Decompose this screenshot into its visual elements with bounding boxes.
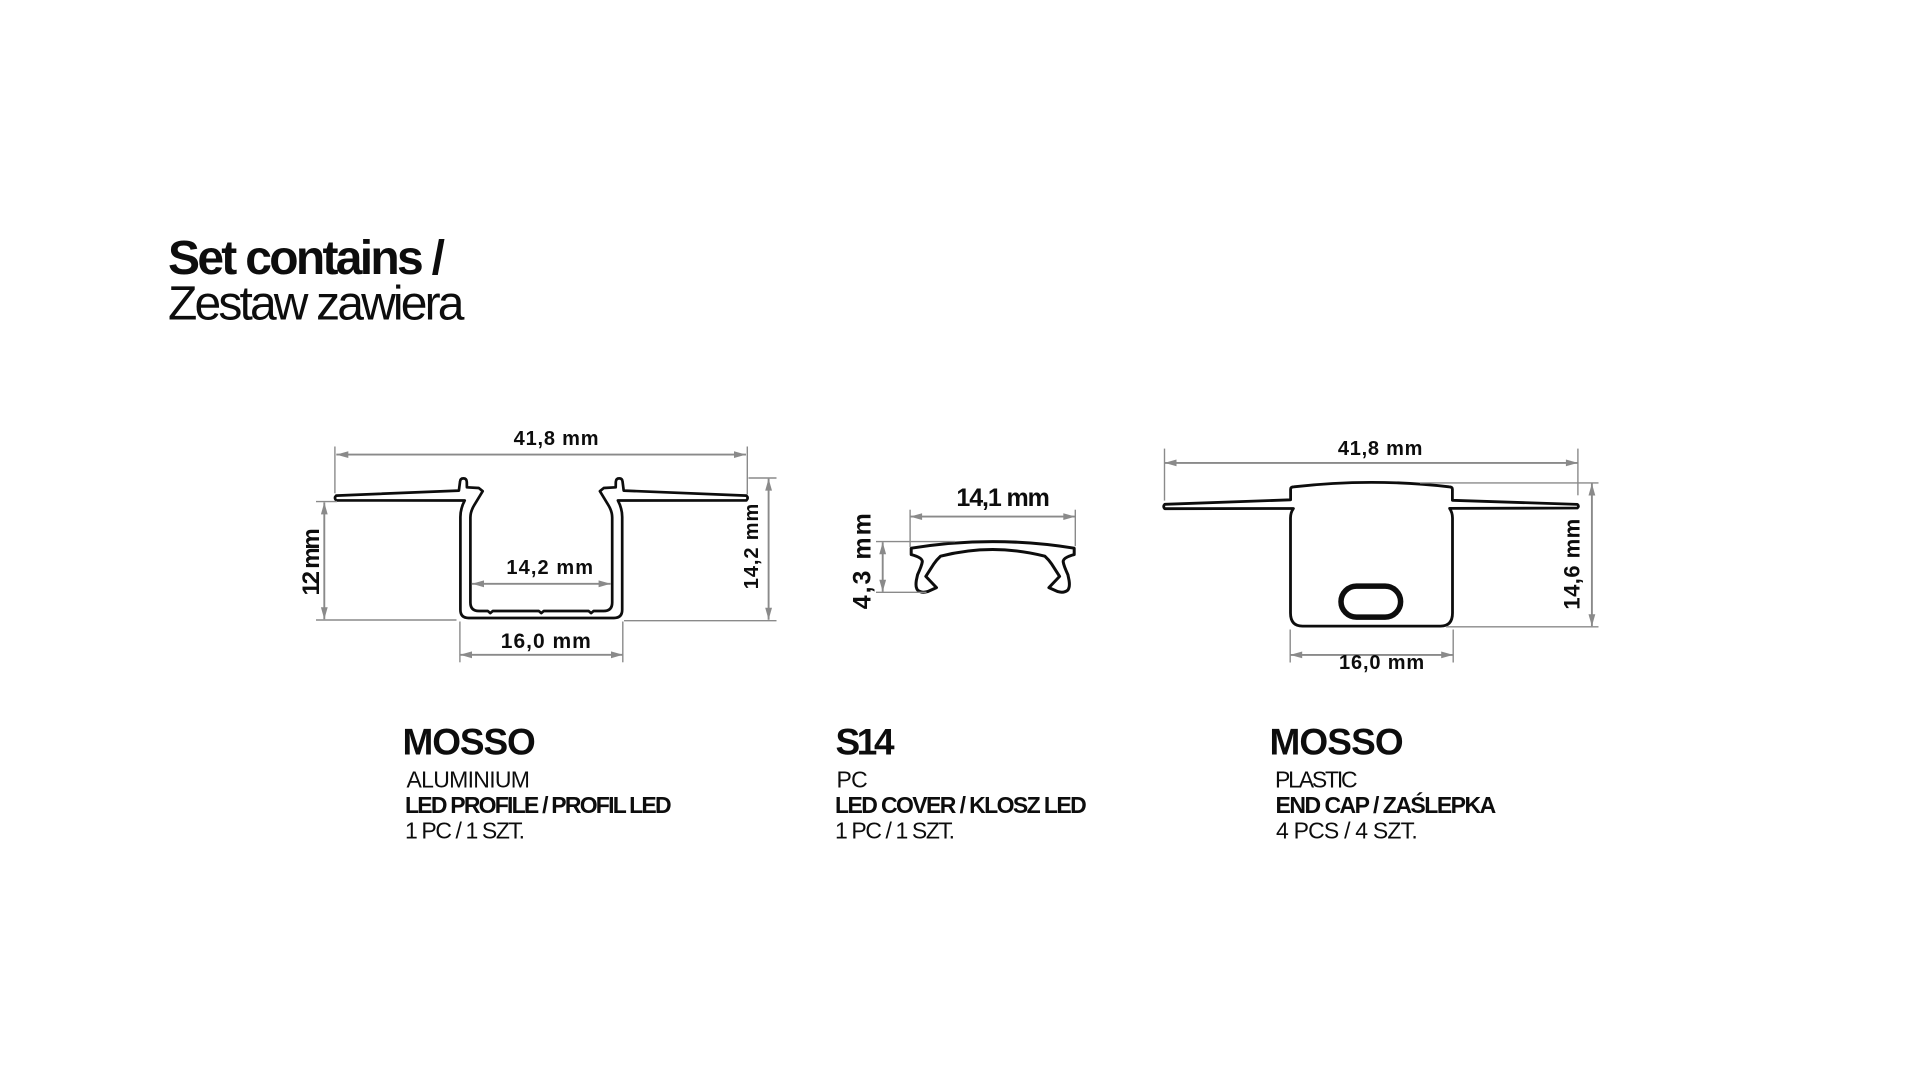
svg-text:MOSSO: MOSSO — [1270, 722, 1403, 763]
svg-text:PLASTIC: PLASTIC — [1275, 767, 1357, 793]
svg-text:1 PC / 1 SZT.: 1 PC / 1 SZT. — [835, 818, 954, 844]
svg-text:16,0 mm: 16,0 mm — [1339, 652, 1425, 674]
svg-text:41,8 mm: 41,8 mm — [514, 428, 600, 450]
svg-text:1 PC / 1 SZT.: 1 PC / 1 SZT. — [405, 818, 524, 844]
svg-text:ALUMINIUM: ALUMINIUM — [407, 767, 530, 793]
svg-text:4 PCS / 4 SZT.: 4 PCS / 4 SZT. — [1276, 818, 1417, 844]
svg-text:41,8 mm: 41,8 mm — [1338, 438, 1423, 460]
svg-text:4,3 mm: 4,3 mm — [849, 511, 877, 609]
svg-text:LED PROFILE / PROFIL LED: LED PROFILE / PROFIL LED — [405, 792, 671, 818]
svg-text:PC: PC — [837, 767, 868, 793]
svg-text:14,1 mm: 14,1 mm — [956, 484, 1048, 512]
svg-text:12 mm: 12 mm — [298, 530, 325, 596]
svg-text:16,0 mm: 16,0 mm — [501, 630, 592, 653]
svg-text:END CAP / ZAŚLEPKA: END CAP / ZAŚLEPKA — [1276, 791, 1496, 818]
svg-text:LED COVER / KLOSZ LED: LED COVER / KLOSZ LED — [835, 792, 1086, 818]
svg-text:S14: S14 — [836, 722, 895, 763]
svg-text:Zestaw zawiera: Zestaw zawiera — [168, 278, 465, 331]
svg-text:14,2 mm: 14,2 mm — [741, 503, 763, 589]
svg-text:14,2 mm: 14,2 mm — [506, 557, 594, 579]
svg-text:MOSSO: MOSSO — [403, 722, 536, 763]
svg-text:14,6 mm: 14,6 mm — [1560, 518, 1585, 609]
